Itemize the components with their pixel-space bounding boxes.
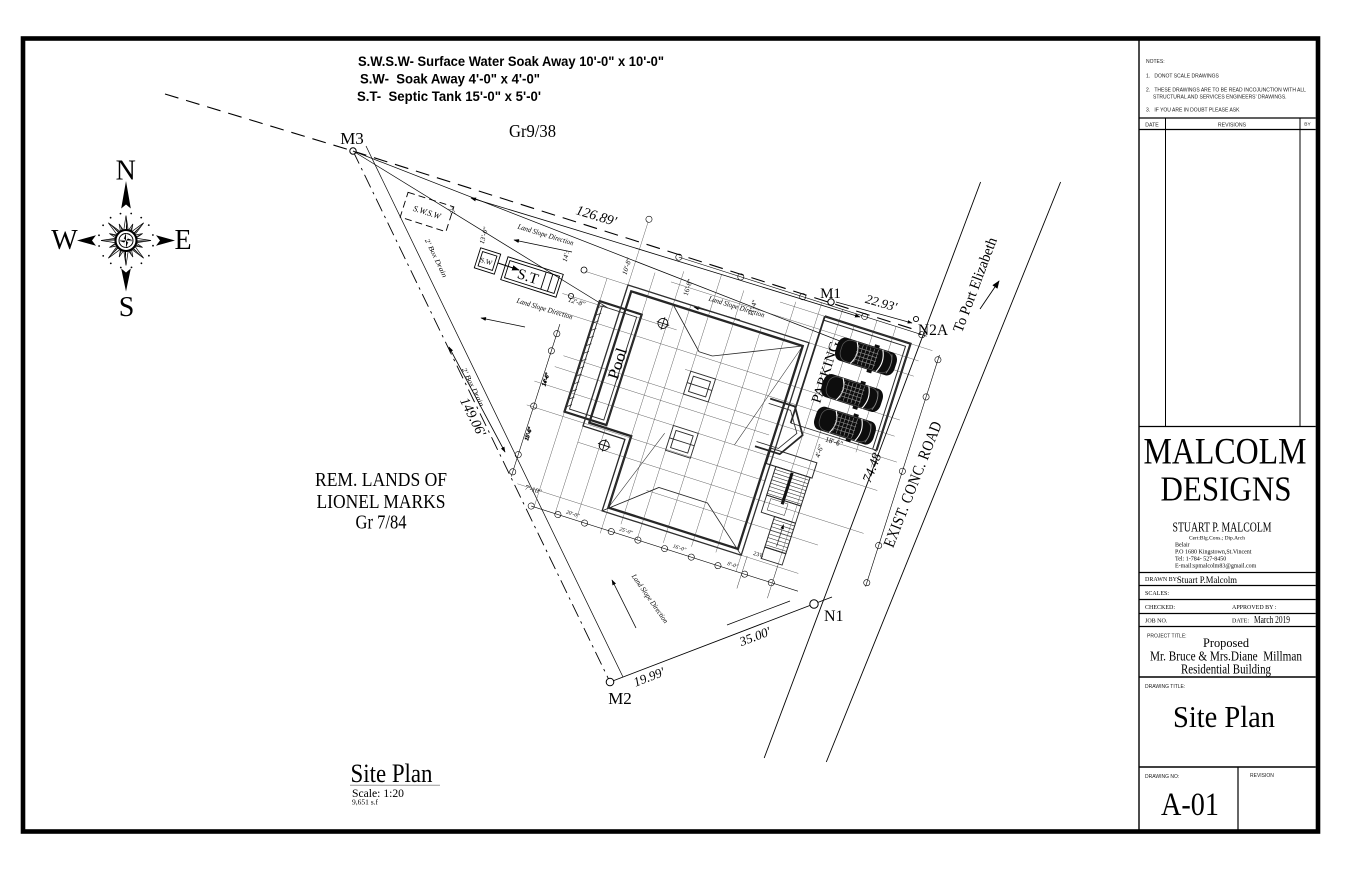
svg-text:REM. LANDS OF: REM. LANDS OF — [315, 469, 447, 491]
svg-text:M3: M3 — [340, 129, 364, 148]
svg-text:E-mail:spmalcolm83@gmail.com: E-mail:spmalcolm83@gmail.com — [1175, 564, 1257, 570]
svg-text:DRAWN BY:: DRAWN BY: — [1145, 577, 1178, 583]
svg-text:CHECKED:: CHECKED: — [1145, 605, 1175, 611]
svg-text:Site Plan: Site Plan — [351, 758, 433, 788]
svg-text:DESIGNS: DESIGNS — [1161, 470, 1292, 509]
svg-text:SCALES:: SCALES: — [1145, 591, 1169, 597]
svg-text:2. THESE DRAWINGS ARE TO BE: 2. THESE DRAWINGS ARE TO BE READ INCOJUN… — [1146, 88, 1306, 94]
svg-text:DATE:: DATE: — [1232, 619, 1249, 625]
svg-text:Gr9/38: Gr9/38 — [509, 121, 556, 141]
svg-text:REVISIONS: REVISIONS — [1218, 123, 1247, 129]
svg-text:M1: M1 — [820, 286, 841, 302]
svg-text:S.W.S.W- Surface Water Soak Aw: S.W.S.W- Surface Water Soak Away 10'-0" … — [358, 53, 664, 69]
svg-text:P.O 1680 Kingstown,St.Vincent: P.O 1680 Kingstown,St.Vincent — [1175, 550, 1252, 556]
svg-text:Cert:Blg.Cons.; Dip.Arch: Cert:Blg.Cons.; Dip.Arch — [1189, 536, 1245, 542]
svg-text:APPROVED BY :: APPROVED BY : — [1232, 605, 1277, 611]
svg-text:REVISION: REVISION — [1250, 773, 1274, 779]
svg-text:STUART P. MALCOLM: STUART P. MALCOLM — [1173, 520, 1272, 535]
svg-text:DRAWING TITLE:: DRAWING TITLE: — [1145, 684, 1185, 690]
svg-text:DATE: DATE — [1145, 123, 1159, 129]
svg-text:Belair: Belair — [1175, 543, 1190, 549]
svg-text:March 2019: March 2019 — [1254, 615, 1290, 626]
svg-text:Site Plan: Site Plan — [1173, 699, 1275, 734]
svg-text:N: N — [116, 155, 136, 186]
svg-text:S: S — [119, 292, 135, 323]
svg-text:S.T- Septic Tank 15'-0" x 5'-: S.T- Septic Tank 15'-0" x 5'-0' — [357, 88, 541, 104]
svg-text:A-01: A-01 — [1161, 787, 1219, 823]
svg-text:PROJECT TITLE:: PROJECT TITLE: — [1147, 634, 1187, 640]
svg-text:Tel: 1-784- 527-8450: Tel: 1-784- 527-8450 — [1175, 557, 1226, 563]
svg-text:9,651 s.f: 9,651 s.f — [352, 798, 379, 807]
svg-text:N1: N1 — [824, 608, 844, 625]
svg-text:DRAWING NO:: DRAWING NO: — [1145, 774, 1179, 780]
svg-text:1. DONOT SCALE DRAWINGS: 1. DONOT SCALE DRAWINGS — [1146, 74, 1219, 80]
svg-text:S.W- Soak Away 4'-0" x 4'-0": S.W- Soak Away 4'-0" x 4'-0" — [360, 71, 540, 87]
svg-text:MALCOLM: MALCOLM — [1144, 431, 1307, 472]
svg-text:E: E — [174, 225, 191, 256]
svg-text:Residential Building: Residential Building — [1181, 662, 1271, 677]
svg-text:JOB NO.: JOB NO. — [1145, 619, 1168, 625]
svg-text:NOTES:: NOTES: — [1146, 59, 1165, 65]
svg-text:LIONEL MARKS: LIONEL MARKS — [317, 491, 446, 513]
svg-text:M2: M2 — [608, 689, 632, 708]
svg-text:BY: BY — [1304, 122, 1311, 128]
svg-text:3. IF YOU ARE IN DOUBT PLEAS: 3. IF YOU ARE IN DOUBT PLEASE ASK — [1146, 108, 1240, 114]
svg-text:W: W — [51, 225, 78, 256]
svg-text:Gr 7/84: Gr 7/84 — [356, 512, 407, 534]
svg-text:STRUCTURAL AND SERVICES ENGINE: STRUCTURAL AND SERVICES ENGINEERS’ DRAWI… — [1153, 95, 1287, 101]
svg-text:Stuart P.Malcolm: Stuart P.Malcolm — [1177, 576, 1238, 586]
